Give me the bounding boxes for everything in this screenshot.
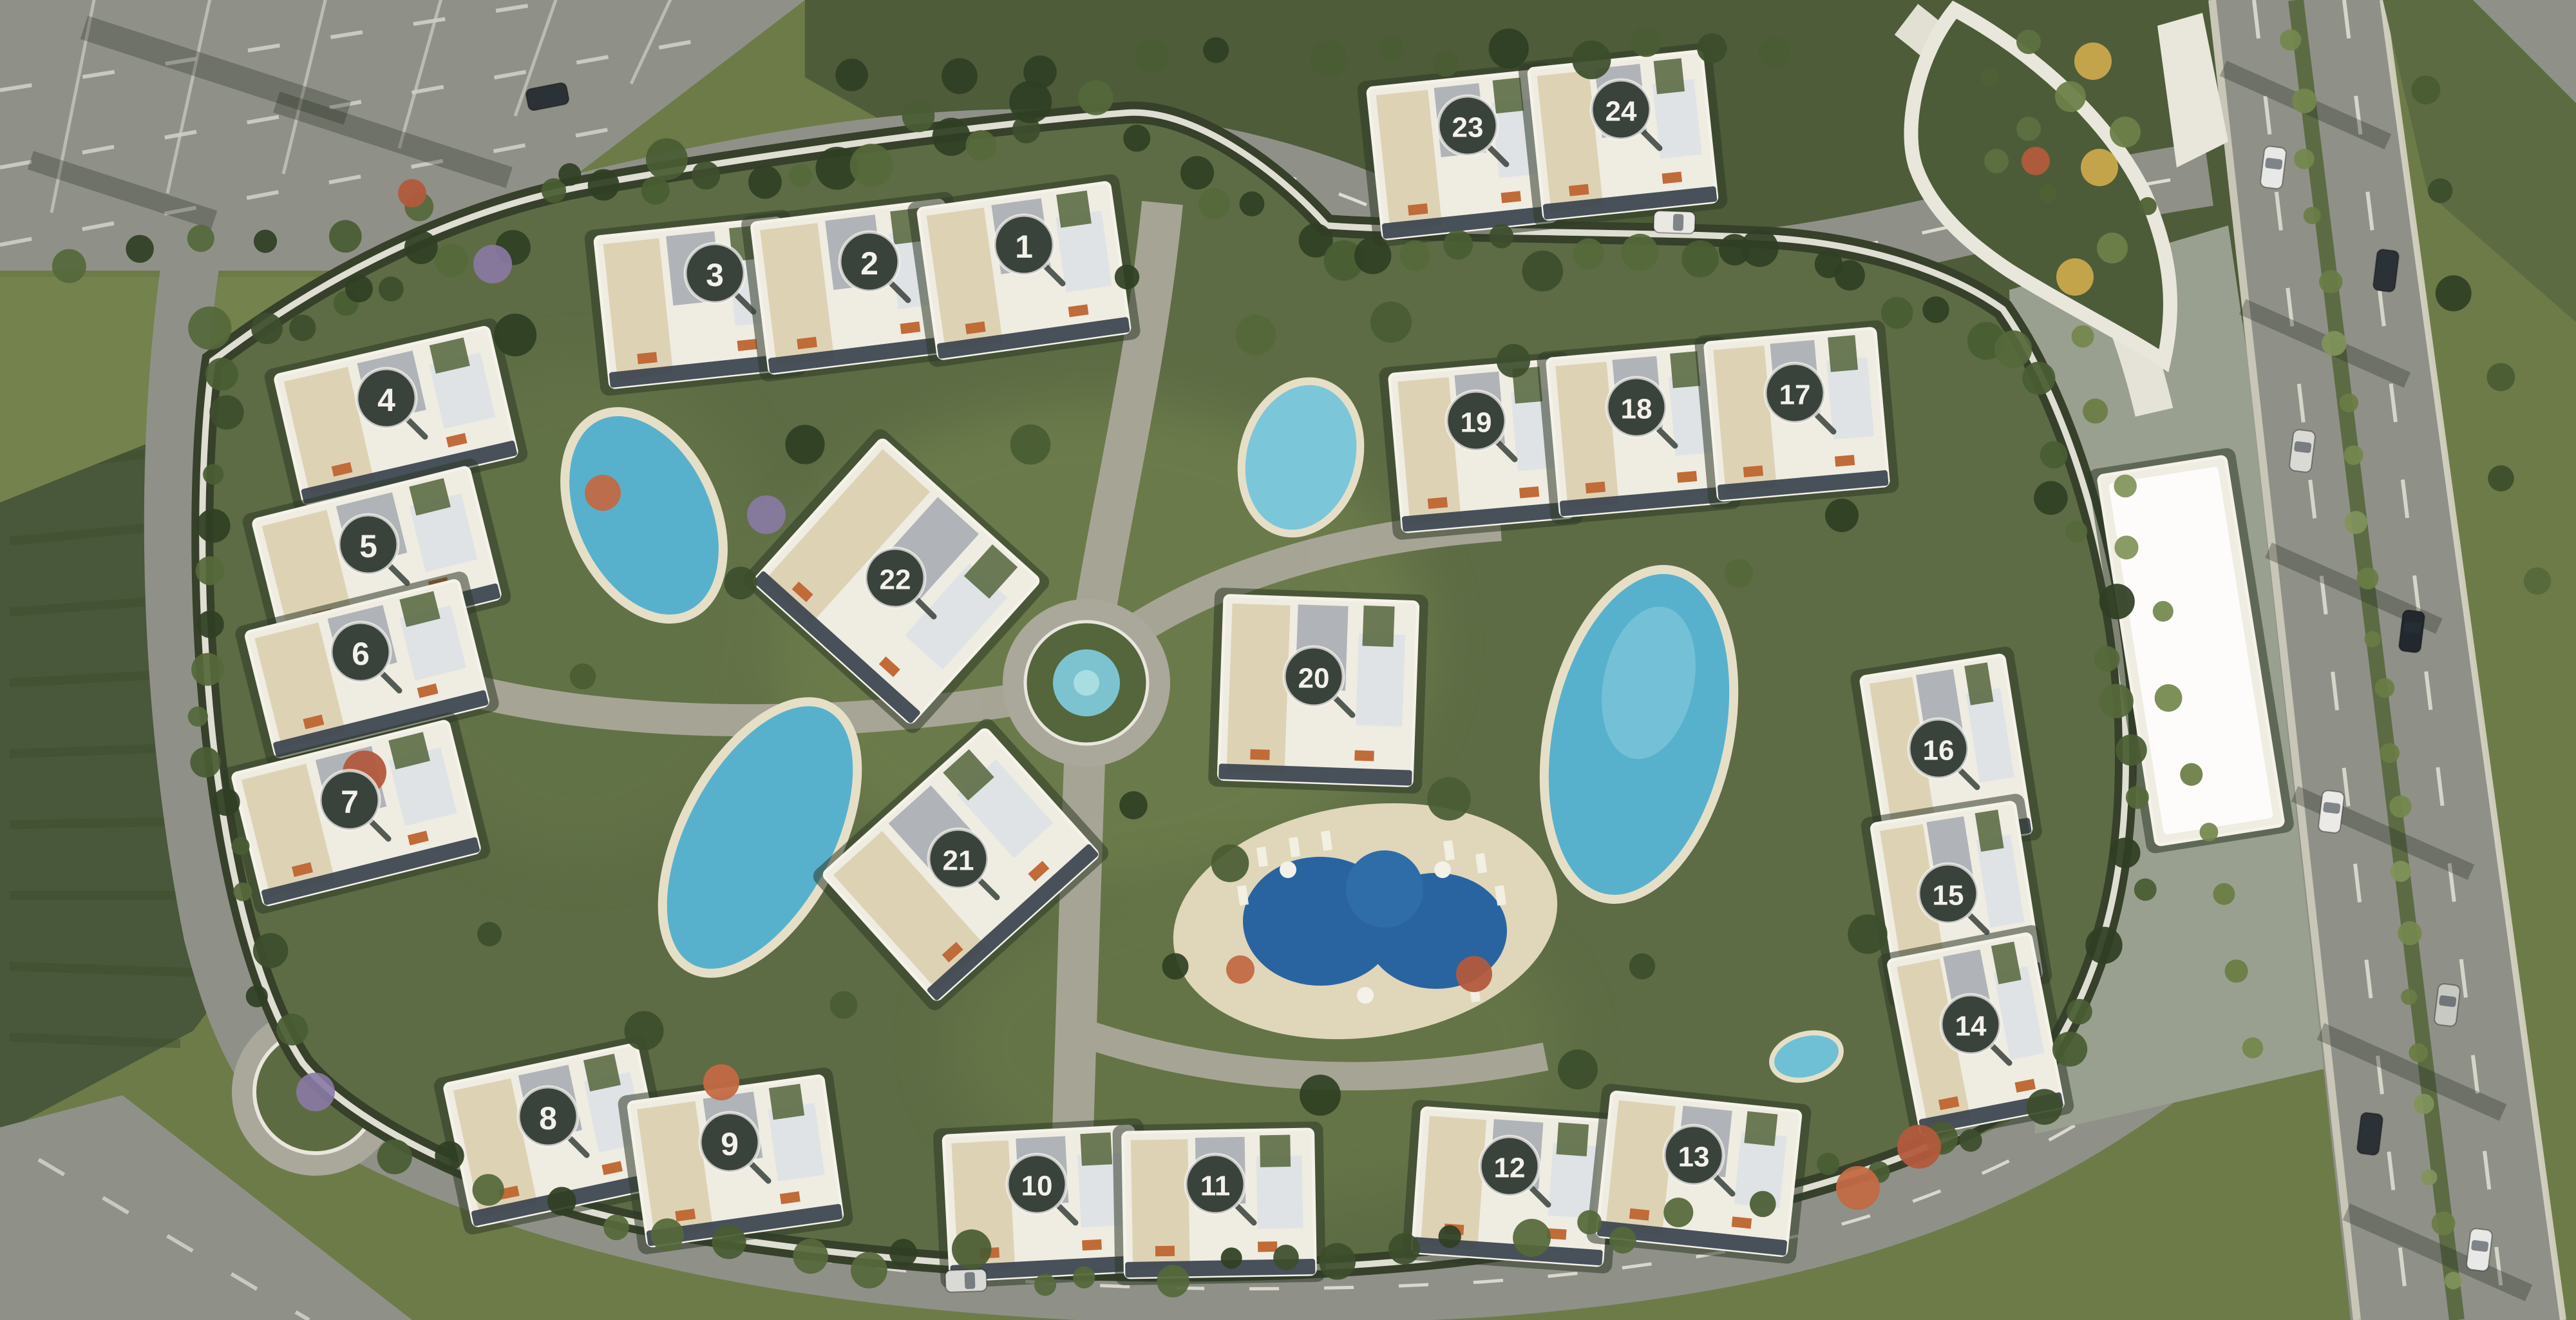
building-marker-number: 16 <box>1923 735 1955 767</box>
car <box>2434 983 2461 1027</box>
building-marker-number: 19 <box>1461 407 1492 439</box>
flowering-tree <box>1226 955 1255 984</box>
central-fountain <box>1003 599 1170 767</box>
building-marker-number: 9 <box>721 1126 739 1162</box>
building-marker-number: 1 <box>1015 229 1033 265</box>
building-marker-number: 6 <box>352 636 370 672</box>
purple-tree <box>747 495 786 534</box>
flowering-tree <box>585 475 621 511</box>
flowering-tree <box>1836 1166 1880 1210</box>
building-marker-number: 22 <box>880 564 911 596</box>
flowering-tree <box>2022 147 2050 175</box>
car <box>1653 211 1695 234</box>
car <box>2318 790 2345 834</box>
car <box>2466 1228 2493 1272</box>
building-marker-number: 3 <box>706 257 724 293</box>
car <box>2289 429 2316 473</box>
building-marker-number: 18 <box>1621 394 1653 425</box>
building-marker-number: 23 <box>1452 112 1484 144</box>
purple-tree <box>473 245 512 283</box>
building-marker-number: 21 <box>943 845 974 877</box>
building-marker-number: 24 <box>1605 96 1637 128</box>
building-marker-number: 8 <box>539 1100 557 1136</box>
building-marker-number: 5 <box>359 528 377 564</box>
flowering-tree <box>398 179 426 207</box>
building-marker-number: 20 <box>1298 663 1330 694</box>
car <box>2372 249 2400 292</box>
master-plan-canvas: 123456789101112131415161718192021222324 <box>0 0 2576 1320</box>
car <box>2356 1112 2383 1156</box>
purple-tree <box>296 1073 335 1111</box>
car <box>2260 146 2287 189</box>
car <box>2398 609 2425 653</box>
flowering-tree <box>1897 1125 1941 1169</box>
building-marker-number: 12 <box>1494 1153 1526 1184</box>
building-marker-number: 15 <box>1933 880 1964 912</box>
car <box>945 1269 987 1292</box>
building-marker-number: 4 <box>377 382 395 418</box>
flowering-tree <box>703 1064 739 1100</box>
building-marker-number: 7 <box>341 784 359 820</box>
master-plan-stage: 123456789101112131415161718192021222324 <box>0 0 2576 1320</box>
building-marker-number: 2 <box>860 245 878 282</box>
building-marker-number: 17 <box>1779 379 1811 411</box>
building-marker-number: 11 <box>1200 1171 1231 1202</box>
building-marker-number: 14 <box>1955 1011 1987 1042</box>
building-marker-number: 10 <box>1021 1171 1053 1202</box>
flowering-tree <box>1456 956 1492 992</box>
building-marker-number: 13 <box>1678 1142 1710 1173</box>
